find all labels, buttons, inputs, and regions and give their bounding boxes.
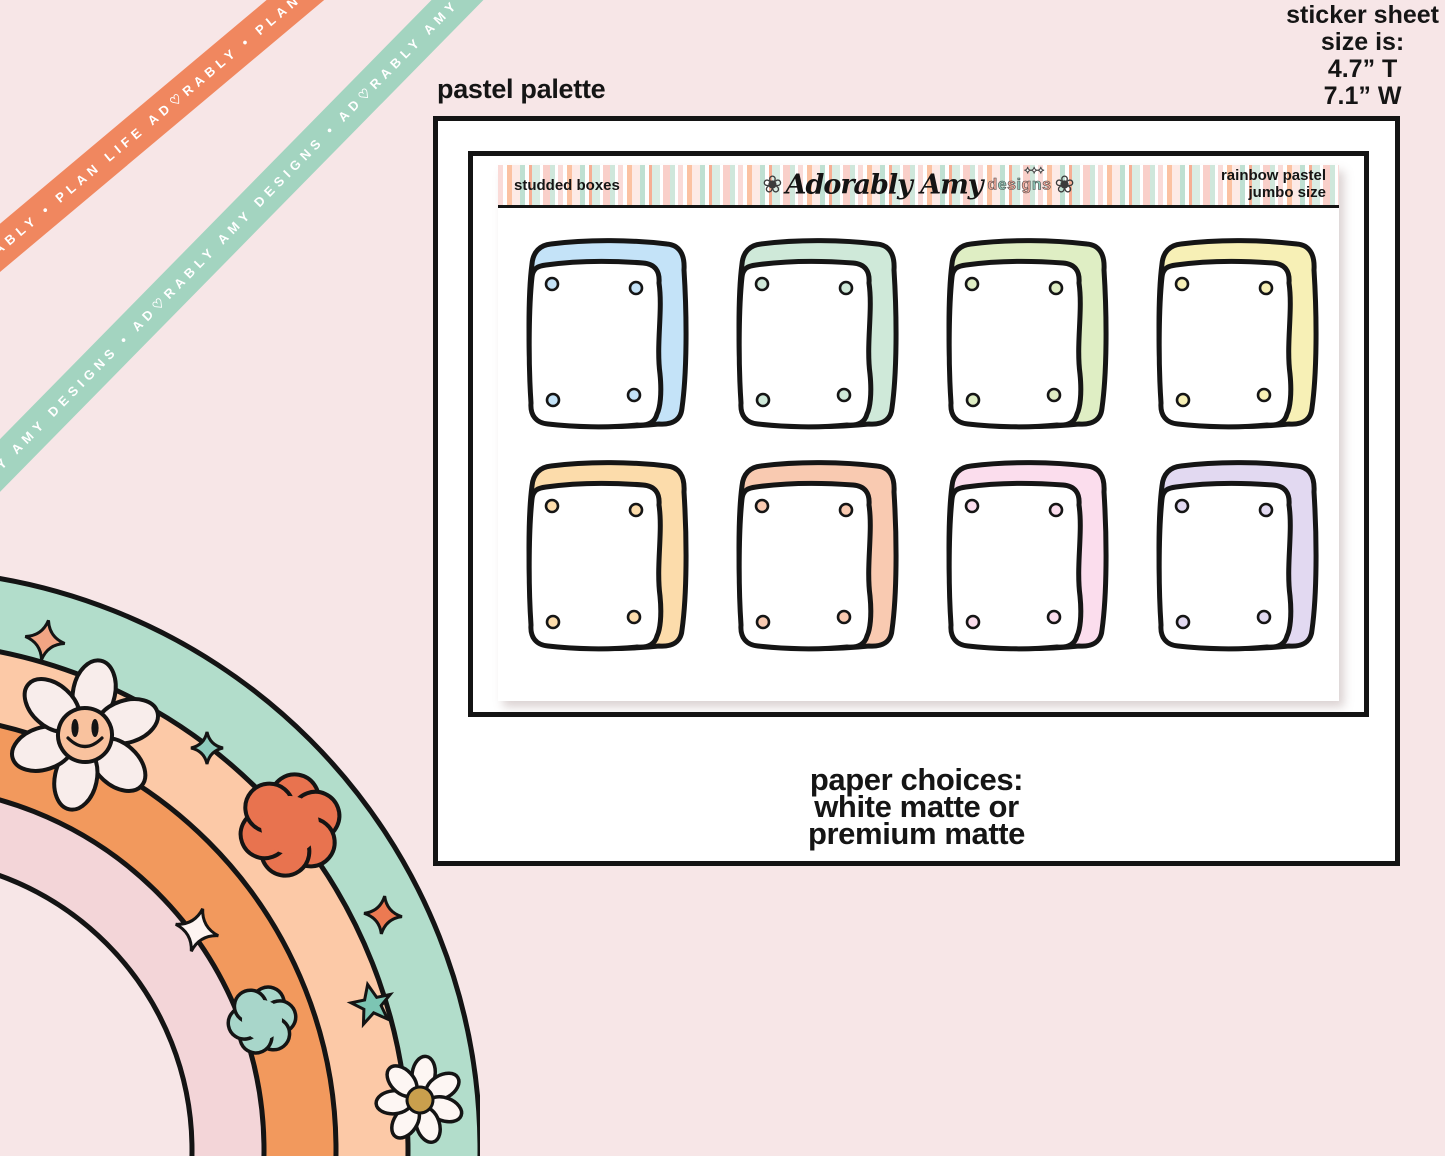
studded-box-sticker-orange xyxy=(518,454,690,658)
studded-box-sticker-pink xyxy=(938,454,1110,658)
product-frame: studded boxes ❀ Adorably Amy designs✦✦✦ … xyxy=(433,116,1400,866)
size-note-line: size is: xyxy=(1286,29,1439,56)
variant-label: rainbow pastel jumbo size xyxy=(1221,168,1339,202)
sticker-sheet-size-note: sticker sheet size is: 4.7” T 7.1” W xyxy=(1286,2,1439,110)
palette-label: pastel palette xyxy=(437,74,605,105)
sheet-header: studded boxes ❀ Adorably Amy designs✦✦✦ … xyxy=(498,165,1339,208)
product-name: studded boxes xyxy=(498,177,620,194)
variant-line: rainbow pastel xyxy=(1221,168,1326,185)
logo-designs-word: designs✦✦✦ xyxy=(987,176,1051,194)
studded-box-sticker-purple xyxy=(1148,454,1320,658)
studded-box-sticker-mint xyxy=(728,232,900,436)
studded-box-sticker-peach xyxy=(728,454,900,658)
washi-ribbon-plan-life: PLAN LIFE AD♡RABLY • PLAN LIFE AD♡RABLY … xyxy=(0,0,404,344)
ribbon-text: PLAN LIFE AD♡RABLY • PLAN LIFE AD♡RABLY … xyxy=(0,0,404,344)
rainbow-arcs xyxy=(0,570,480,1156)
daisy-icon: ❀ xyxy=(1055,173,1075,197)
studded-box-sticker-yellow xyxy=(1148,232,1320,436)
sticker-sheet: studded boxes ❀ Adorably Amy designs✦✦✦ … xyxy=(498,165,1339,701)
size-note-line: 4.7” T xyxy=(1286,56,1439,83)
product-listing-image: PLAN LIFE AD♡RABLY • PLAN LIFE AD♡RABLY … xyxy=(0,0,1445,1156)
paper-note-line: premium matte xyxy=(438,820,1395,847)
size-note-line: 7.1” W xyxy=(1286,83,1439,110)
studded-box-sticker-blue xyxy=(518,232,690,436)
size-note-line: sticker sheet xyxy=(1286,2,1439,29)
sheet-frame: studded boxes ❀ Adorably Amy designs✦✦✦ … xyxy=(468,151,1369,717)
variant-line: jumbo size xyxy=(1221,185,1326,202)
rainbow-illustration xyxy=(0,556,480,1156)
brand-logo: ❀ Adorably Amy designs✦✦✦ ❀ xyxy=(762,170,1074,201)
sticker-grid xyxy=(498,208,1339,658)
sparkles-icon: ✦✦✦ xyxy=(1024,165,1044,176)
brand-script-text: Adorably Amy xyxy=(785,170,982,201)
paper-choices-note: paper choices: white matte or premium ma… xyxy=(438,766,1395,847)
studded-box-sticker-green xyxy=(938,232,1110,436)
daisy-icon: ❀ xyxy=(762,173,782,197)
